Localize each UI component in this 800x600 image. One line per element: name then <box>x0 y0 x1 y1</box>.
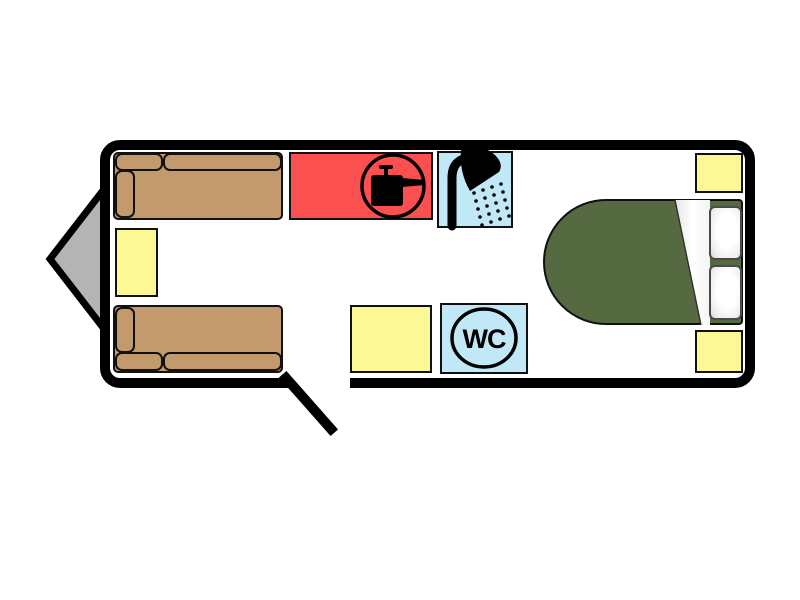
mid-wardrobe <box>350 305 432 373</box>
sofa-armrest <box>115 170 135 218</box>
bedside-storage-nearside <box>695 330 743 373</box>
sofa-back-cushion <box>115 352 163 371</box>
kitchen-unit <box>289 152 433 220</box>
shower-cubicle <box>437 151 513 228</box>
wc-cubicle <box>440 303 528 374</box>
front-chest-table <box>115 228 158 297</box>
pillow <box>709 265 742 320</box>
caravan-floorplan: WC <box>0 0 800 600</box>
door-opening <box>288 376 350 390</box>
bedside-storage-offside <box>695 153 743 193</box>
sofa-back-cushion <box>115 153 163 171</box>
sofa-back-cushion <box>163 352 282 371</box>
sofa-back-cushion <box>163 153 282 171</box>
sofa-armrest <box>115 307 135 353</box>
pillow <box>709 206 742 260</box>
